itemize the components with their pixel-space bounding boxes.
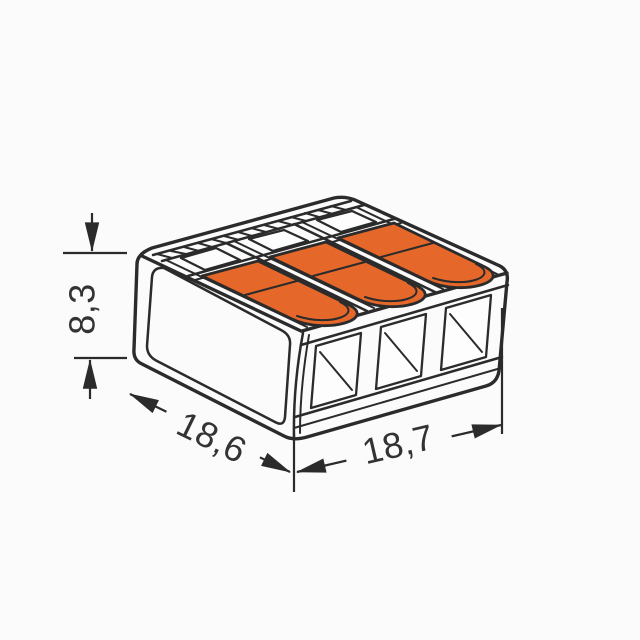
drawing-canvas: 8,3 18,6 18,7 — [0, 0, 640, 640]
height-dimension-label: 8,3 — [62, 283, 103, 335]
connector-dimension-drawing: 8,3 18,6 18,7 — [0, 0, 640, 640]
